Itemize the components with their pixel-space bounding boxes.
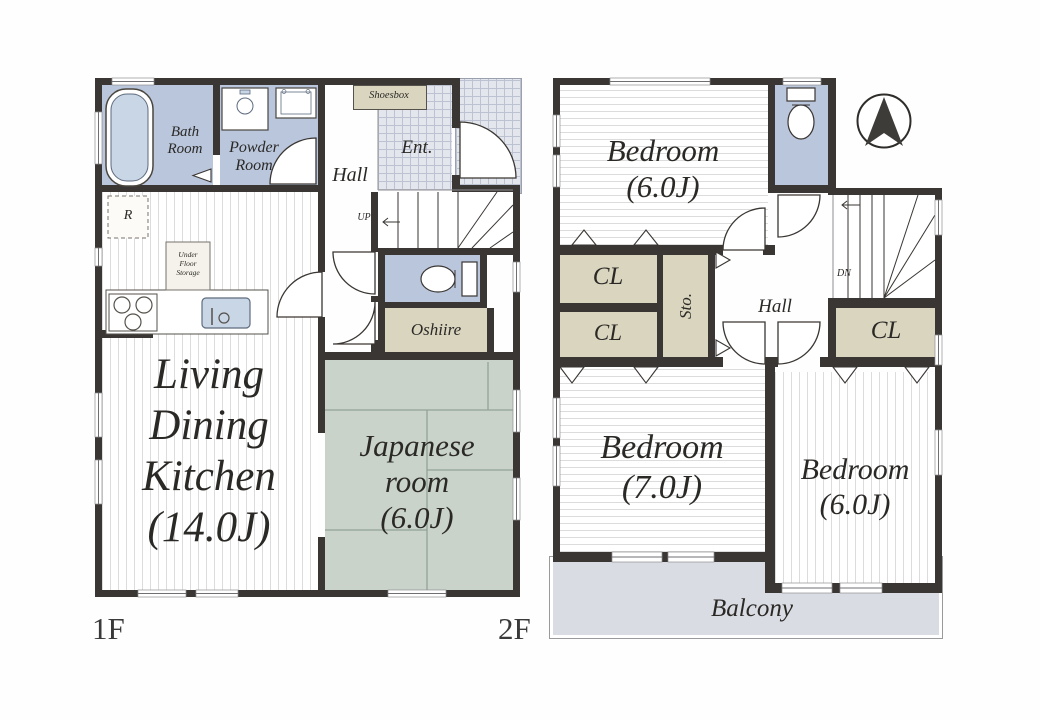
- wall-segment: [487, 308, 494, 352]
- wall-segment: [828, 357, 942, 367]
- wall-segment: [935, 188, 942, 593]
- room-label-japanese: Japaneseroom(6.0J): [359, 428, 474, 536]
- wall-segment: [318, 537, 325, 590]
- wall-segment: [378, 308, 385, 352]
- wall-segment: [452, 185, 520, 192]
- wall-segment: [768, 185, 836, 193]
- room-toilet-1f: [385, 255, 480, 303]
- room-label-bath: BathRoom: [168, 124, 203, 158]
- compass-north-icon: [858, 95, 911, 148]
- room-label-bedroom-top: Bedroom(6.0J): [607, 133, 720, 205]
- wall-segment: [708, 245, 715, 357]
- floor-label-2f: 2F: [498, 611, 531, 647]
- wall-segment: [318, 317, 325, 352]
- room-label-hall-2f: Hall: [758, 296, 792, 318]
- wall-segment: [553, 78, 836, 85]
- wall-segment: [378, 302, 487, 308]
- room-label-hall-1f: Hall: [332, 164, 368, 187]
- label-shoesbox: Shoesbox: [369, 90, 409, 101]
- room-label-powder: PowderRoom: [229, 139, 279, 175]
- wall-segment: [820, 357, 828, 367]
- label-up: UP: [357, 212, 370, 223]
- room-toilet-2f: [775, 85, 828, 185]
- wall-segment: [828, 78, 836, 188]
- wall-segment: [378, 248, 513, 255]
- wall-segment: [828, 298, 942, 308]
- label-under-floor-storage: UnderFloorStorage: [176, 250, 199, 277]
- label-dn: DN: [837, 268, 851, 279]
- wall-segment: [95, 78, 460, 85]
- wall-segment: [513, 185, 520, 597]
- stairs-area-2f: [836, 195, 935, 298]
- wall-segment: [318, 78, 325, 192]
- floor-label-1f: 1F: [92, 611, 125, 647]
- label-closet-1: CL: [593, 263, 624, 291]
- wall-segment: [553, 78, 560, 562]
- wall-segment: [318, 360, 325, 433]
- wall-segment: [553, 303, 658, 312]
- wall-segment: [452, 85, 460, 128]
- wall-segment: [95, 330, 153, 338]
- wall-segment: [371, 296, 378, 302]
- wall-segment: [378, 255, 385, 308]
- wall-segment: [95, 590, 520, 597]
- wall-segment: [553, 552, 775, 562]
- room-label-balcony: Balcony: [711, 595, 793, 623]
- wall-segment: [553, 245, 723, 255]
- wall-segment: [371, 192, 378, 252]
- room-label-ldk: LivingDiningKitchen(14.0J): [142, 349, 276, 553]
- wall-segment: [95, 185, 325, 192]
- wall-segment: [480, 255, 487, 308]
- wall-segment: [318, 352, 513, 360]
- label-refrigerator: R: [124, 208, 133, 224]
- wall-segment: [765, 583, 942, 593]
- wall-segment: [768, 78, 775, 193]
- label-storage-sto: Sto.: [676, 293, 696, 319]
- room-label-entrance: Ent.: [401, 137, 432, 159]
- room-label-bedroom-right: Bedroom(6.0J): [801, 452, 910, 522]
- floor-plan-canvas: BathRoom PowderRoom Hall Shoesbox Ent. U…: [0, 0, 1040, 720]
- wall-segment: [213, 85, 220, 155]
- label-closet-3: CL: [871, 317, 902, 345]
- stairs-area-1f: [378, 192, 513, 250]
- room-label-oshiire: Oshiire: [411, 320, 461, 340]
- wall-segment: [763, 245, 775, 255]
- wall-segment: [828, 188, 942, 195]
- wall-segment: [318, 192, 325, 272]
- label-closet-2: CL: [594, 320, 622, 346]
- room-label-bedroom-left: Bedroom(7.0J): [600, 428, 723, 508]
- porch-tile: [455, 78, 522, 194]
- wall-segment: [657, 245, 663, 357]
- wall-segment: [553, 357, 723, 367]
- wall-segment: [828, 308, 836, 357]
